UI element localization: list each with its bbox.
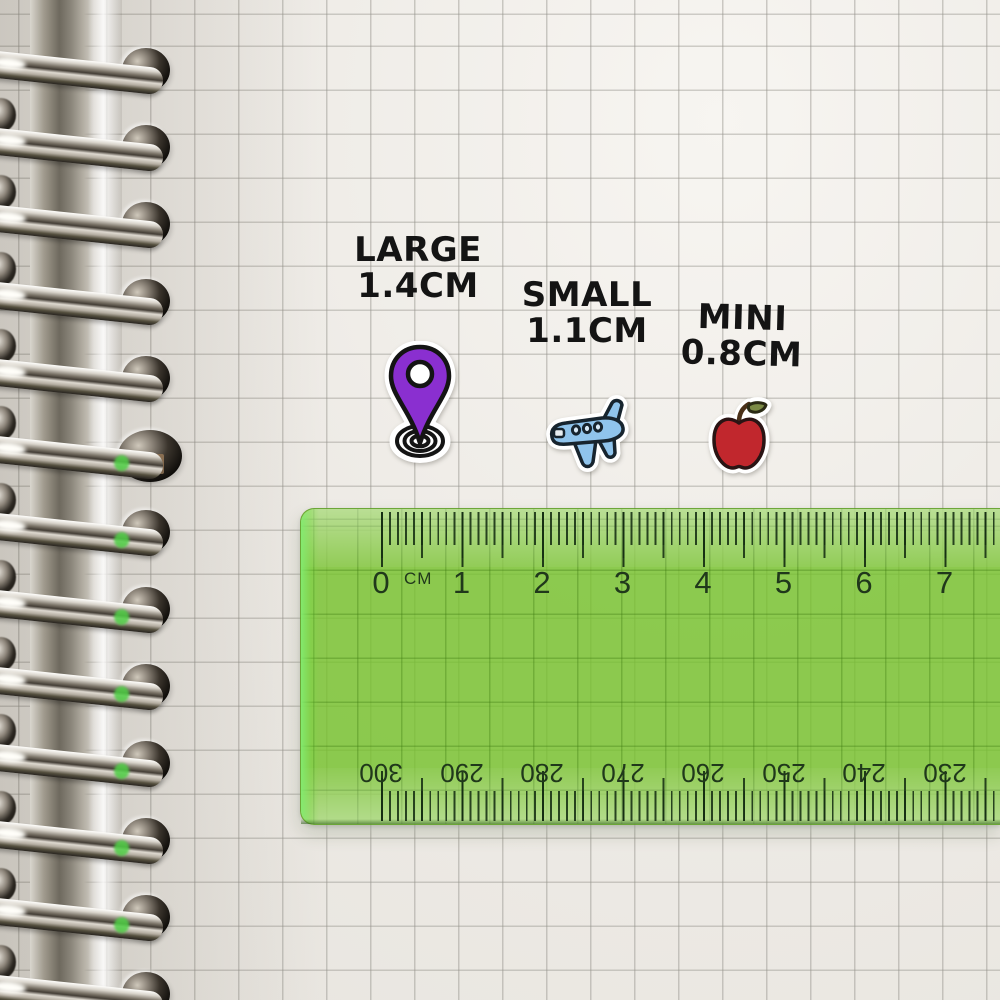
mm-number: 250 <box>754 757 814 788</box>
apple-icon <box>705 397 773 477</box>
mm-number: 290 <box>432 757 492 788</box>
apple-sticker <box>705 397 773 477</box>
coil-back <box>0 637 16 671</box>
cm-number: 7 <box>923 565 967 601</box>
size-value: 0.8CM <box>641 333 842 374</box>
green-reflection <box>113 685 130 702</box>
notebook-photo: LARGE 1.4CM SMALL 1.1CM MINI 0.8CM <box>0 0 1000 1000</box>
coil-back <box>0 791 16 825</box>
green-reflection <box>113 608 130 625</box>
pin-center-dot <box>408 362 432 386</box>
coil-back <box>0 406 16 440</box>
green-reflection <box>113 531 130 548</box>
cm-number: 1 <box>440 565 484 601</box>
coil-back <box>0 329 16 363</box>
cm-number: 0 <box>359 565 403 601</box>
mm-number: 260 <box>673 757 733 788</box>
size-label-mini: MINI 0.8CM <box>641 297 843 374</box>
ruler-cm-scale-cm-ticks <box>381 512 1000 567</box>
coil-back <box>0 98 16 132</box>
cockpit-window <box>554 429 564 437</box>
size-name: MINI <box>642 297 843 338</box>
cm-number: 4 <box>681 565 725 601</box>
cm-number: 5 <box>762 565 806 601</box>
apple-body <box>714 419 764 468</box>
airplane-icon <box>545 395 637 473</box>
airplane-sticker <box>545 395 637 473</box>
cm-number: 3 <box>601 565 645 601</box>
mm-number: 230 <box>915 757 975 788</box>
mm-number: 270 <box>593 757 653 788</box>
green-ruler: CM 0 1 2 3 4 5 6 7 300 290 280 270 260 2… <box>300 508 1000 825</box>
size-name: LARGE <box>318 232 518 268</box>
cm-number: 6 <box>842 565 886 601</box>
mm-number: 300 <box>351 757 411 788</box>
coil-back <box>0 483 16 517</box>
green-reflection <box>113 839 130 856</box>
location-pin-icon <box>384 341 456 465</box>
mm-number: 240 <box>834 757 894 788</box>
cm-unit-label: CM <box>404 569 432 589</box>
green-reflection <box>113 916 130 933</box>
ruler-left-edge <box>301 509 319 824</box>
coil-back <box>0 945 16 979</box>
coil-back <box>0 175 16 209</box>
apple-leaf <box>748 403 766 412</box>
coil-back <box>0 560 16 594</box>
mm-number: 280 <box>512 757 572 788</box>
green-reflection <box>113 762 130 779</box>
location-pin-sticker <box>384 341 456 465</box>
coil-back <box>0 868 16 902</box>
coil-back <box>0 714 16 748</box>
spiral-binding <box>0 0 210 1000</box>
windows <box>572 423 601 434</box>
cm-number: 2 <box>520 565 564 601</box>
green-reflection <box>113 454 130 471</box>
coil-back <box>0 252 16 286</box>
